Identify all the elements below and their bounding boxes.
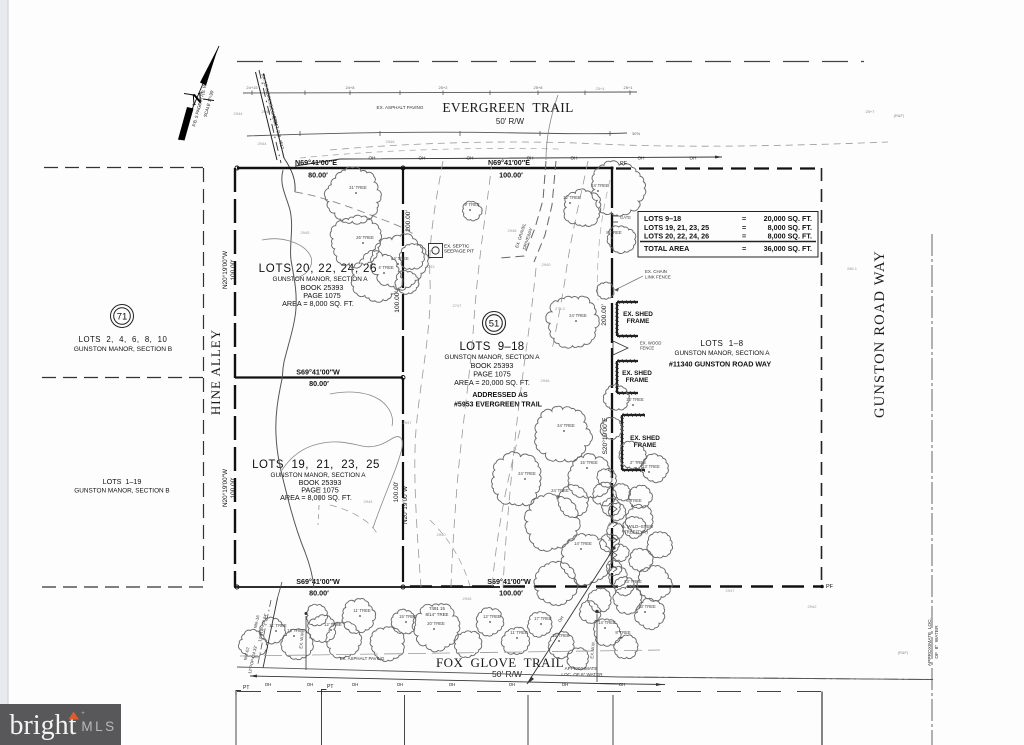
svg-text:2946: 2946 [463,596,473,601]
svg-text:7491 15: 7491 15 [429,606,445,611]
svg-text:TOTAL AREA: TOTAL AREA [644,244,689,253]
svg-text:4′ TREE: 4′ TREE [378,265,394,270]
svg-text:AREA = 8,000 SQ. FT.: AREA = 8,000 SQ. FT. [280,493,352,502]
svg-text:OH: OH [562,682,569,687]
svg-text:9′ TREE: 9′ TREE [464,202,480,207]
svg-text:80.00′: 80.00′ [308,171,328,180]
svg-text:OH: OH [509,682,516,687]
svg-text:200.00′: 200.00′ [601,304,608,326]
svg-text:80.00′: 80.00′ [309,379,329,388]
svg-text:17′ TREE: 17′ TREE [534,616,552,621]
svg-text:N20°19′00″W: N20°19′00″W [221,250,229,289]
svg-text:20,000 SQ. FT.: 20,000 SQ. FT. [764,214,812,223]
svg-text:EX. SHED: EX. SHED [622,370,652,377]
svg-text:FRAME: FRAME [634,442,657,449]
svg-text:FRAME: FRAME [626,377,649,384]
svg-text:2944: 2944 [364,499,374,504]
svg-text:A. WILD–STEM: A. WILD–STEM [622,524,653,529]
svg-text:GUNSTON MANOR, SECTION B: GUNSTON MANOR, SECTION B [74,488,169,495]
svg-text:S69°41′00″W: S69°41′00″W [296,368,340,377]
svg-text:2944: 2944 [234,111,244,116]
svg-text:LOTS 9–18: LOTS 9–18 [459,341,524,353]
svg-text:8,000 SQ. FT.: 8,000 SQ. FT. [768,223,812,232]
svg-text:LOTS 20, 22, 24, 26: LOTS 20, 22, 24, 26 [644,232,709,241]
svg-text:200.00′: 200.00′ [405,210,412,232]
svg-text:LOTS 2, 4, 6, 8, 10: LOTS 2, 4, 6, 8, 10 [79,335,168,344]
svg-text:50′ R/W: 50′ R/W [496,117,525,126]
svg-text:EX. CHAIN: EX. CHAIN [645,269,667,274]
svg-text:GUNSTON ROAD WAY: GUNSTON ROAD WAY [872,250,888,418]
svg-text:8′ TREE: 8′ TREE [606,230,622,235]
svg-text:OH: OH [397,682,404,687]
svg-text:14′ TREE: 14′ TREE [598,620,616,625]
svg-text:#5953 EVERGREEN TRAIL: #5953 EVERGREEN TRAIL [454,402,543,409]
svg-text:LOTS 20, 22, 24, 26: LOTS 20, 22, 24, 26 [259,263,378,275]
svg-text:LOTS 19, 21, 23, 25: LOTS 19, 21, 23, 25 [644,223,709,232]
svg-text:24′ TREE: 24′ TREE [518,471,536,476]
svg-text:14′ TREE: 14′ TREE [626,397,644,402]
svg-text:15′ TREE: 15′ TREE [552,633,570,638]
svg-text:GUNSTON MANOR, SECTION A: GUNSTON MANOR, SECTION A [674,350,770,357]
svg-text:S69°41′00″W: S69°41′00″W [296,577,340,586]
svg-text:25+2: 25+2 [438,85,448,90]
svg-text:OH: OH [307,682,314,687]
svg-text:GUNSTON MANOR, SECTION B: GUNSTON MANOR, SECTION B [74,346,173,353]
svg-text:OH: OH [690,156,697,161]
svg-text:APPROXIMATE LOC.: APPROXIMATE LOC. [927,618,933,666]
svg-text:100.00′: 100.00′ [499,589,523,598]
svg-text:ADDRESSED AS: ADDRESSED AS [472,392,528,399]
svg-text:GUNSTON MANOR, SECTION A: GUNSTON MANOR, SECTION A [272,276,368,283]
svg-text:S69°41′00″W: S69°41′00″W [487,577,531,586]
svg-text:8,000 SQ. FT.: 8,000 SQ. FT. [768,232,812,241]
svg-text:LINK FENCE: LINK FENCE [645,275,671,280]
svg-text:8/14″ TREE: 8/14″ TREE [426,612,449,617]
svg-text:25+4: 25+4 [595,86,605,91]
svg-text:EX. SHED: EX. SHED [630,435,660,442]
svg-text:EX. ASPHALT PAVING: EX. ASPHALT PAVING [377,105,424,110]
svg-text:11′ TREE: 11′ TREE [510,630,528,635]
svg-text:FENCE: FENCE [640,346,654,351]
svg-text:LOTS 19, 21, 23, 25: LOTS 19, 21, 23, 25 [252,459,380,471]
svg-text:MLS: MLS [81,719,116,734]
svg-text:20′ TREE: 20′ TREE [427,621,445,626]
svg-text:TREE(TYP.): TREE(TYP.) [624,530,648,535]
svg-text:EX. ASPHALT PAVING: EX. ASPHALT PAVING [340,656,385,661]
svg-text:GUNSTON MANOR, SECTION A: GUNSTON MANOR, SECTION A [444,354,540,361]
svg-text:2947: 2947 [726,588,736,593]
svg-text:N20°19′00″W: N20°19′00″W [401,485,409,524]
svg-text:12′ TREE: 12′ TREE [563,195,581,200]
svg-text:8′ TREE: 8′ TREE [615,630,631,635]
svg-text:15′ TREE: 15′ TREE [580,460,598,465]
svg-text:80.00′: 80.00′ [309,589,329,598]
svg-text:OH: OH [467,156,474,161]
svg-text:13′ TREE: 13′ TREE [638,604,656,609]
svg-text:2945: 2945 [301,230,311,235]
svg-text:A.: A. [608,538,612,542]
svg-text:2946: 2946 [386,139,396,144]
svg-text:36,000 SQ. FT.: 36,000 SQ. FT. [764,244,812,253]
svg-text:OH: OH [265,682,272,687]
svg-text:=: = [742,214,746,223]
svg-text:APPROXIMATE: APPROXIMATE [565,666,598,671]
svg-text:HINE ALLEY: HINE ALLEY [208,329,223,415]
svg-text:31′ TREE: 31′ TREE [349,185,367,190]
svg-text:EX. SHED: EX. SHED [623,311,653,318]
svg-text:OH: OH [619,682,626,687]
svg-text:OH: OH [638,156,645,161]
svg-text:71: 71 [117,312,128,323]
svg-text:OH: OH [352,682,359,687]
svg-text:bright: bright [10,710,77,741]
svg-text:OH: OH [571,156,578,161]
svg-text:AREA = 20,000 SQ. FT.: AREA = 20,000 SQ. FT. [454,378,530,387]
svg-text:LOTS 1–19: LOTS 1–19 [103,477,142,486]
svg-text:PT: PT [327,684,333,690]
svg-text:AREA = 8,000 SQ. FT.: AREA = 8,000 SQ. FT. [282,299,354,308]
svg-text:30′N: 30′N [632,131,640,136]
svg-text:N69°41′00″E: N69°41′00″E [295,158,337,167]
svg-text:OH: OH [369,156,376,161]
svg-text:100.00′: 100.00′ [393,481,400,503]
svg-text:OF 8″ WATER: OF 8″ WATER [934,625,940,659]
svg-text:A.: A. [608,567,612,571]
svg-text:FOX GLOVE TRAIL: FOX GLOVE TRAIL [436,655,564,670]
svg-text:2944: 2944 [258,141,268,146]
svg-text:PF: PF [826,584,834,590]
svg-text:N20°19′00″W: N20°19′00″W [221,468,229,507]
svg-text:25+7: 25+7 [865,109,875,114]
svg-text:12′ TREE: 12′ TREE [324,622,342,627]
svg-text:+: + [81,711,85,717]
svg-text:2747: 2747 [453,303,463,308]
svg-text:=: = [742,244,746,253]
svg-text:26′ TREE: 26′ TREE [356,235,374,240]
svg-text:100.00′: 100.00′ [230,259,237,281]
svg-text:2940: 2940 [542,262,552,267]
svg-text:275.2: 275.2 [555,306,566,311]
svg-text:#11340 GUNSTON ROAD WAY: #11340 GUNSTON ROAD WAY [669,360,771,369]
svg-text:LOTS 1–8: LOTS 1–8 [700,339,743,348]
svg-text:OH: OH [419,156,426,161]
svg-text:11′ TREE: 11′ TREE [353,608,371,613]
svg-text:(R&F): (R&F) [898,650,909,655]
svg-text:13′ TREE: 13′ TREE [642,464,660,469]
svg-text:LOTS 9–18: LOTS 9–18 [644,214,681,223]
svg-text:14′ TREE: 14′ TREE [574,541,592,546]
svg-text:N69°41′00″E: N69°41′00″E [488,158,530,167]
svg-text:24′ TREE: 24′ TREE [591,183,609,188]
svg-text:24′ TREE: 24′ TREE [569,313,587,318]
svg-text:51: 51 [489,319,500,330]
svg-text:FRAME: FRAME [627,318,650,325]
svg-text:12′ TREE: 12′ TREE [483,614,501,619]
svg-text:A.: A. [608,507,612,511]
svg-text:24+8: 24+8 [345,85,355,90]
svg-text:286.1: 286.1 [847,266,858,271]
svg-text:2946: 2946 [541,378,551,383]
svg-text:24+15: 24+15 [246,85,258,90]
svg-text:=: = [742,232,746,241]
svg-text:2942: 2942 [808,604,818,609]
svg-text:2940: 2940 [437,532,447,537]
svg-text:24′ TREE: 24′ TREE [557,423,575,428]
svg-text:=: = [742,223,746,232]
svg-text:25+8: 25+8 [533,85,543,90]
svg-text:100.00′: 100.00′ [499,171,523,180]
svg-text:100.00′: 100.00′ [230,477,237,499]
svg-text:A.: A. [608,522,612,526]
svg-text:25+1: 25+1 [623,85,633,90]
svg-text:SEEPAGE PIT: SEEPAGE PIT [444,249,474,254]
svg-text:2947: 2947 [403,420,413,425]
svg-text:2948: 2948 [508,228,518,233]
svg-text:OH: OH [449,682,456,687]
svg-text:(R&F): (R&F) [894,113,905,118]
svg-text:PT: PT [243,685,249,691]
